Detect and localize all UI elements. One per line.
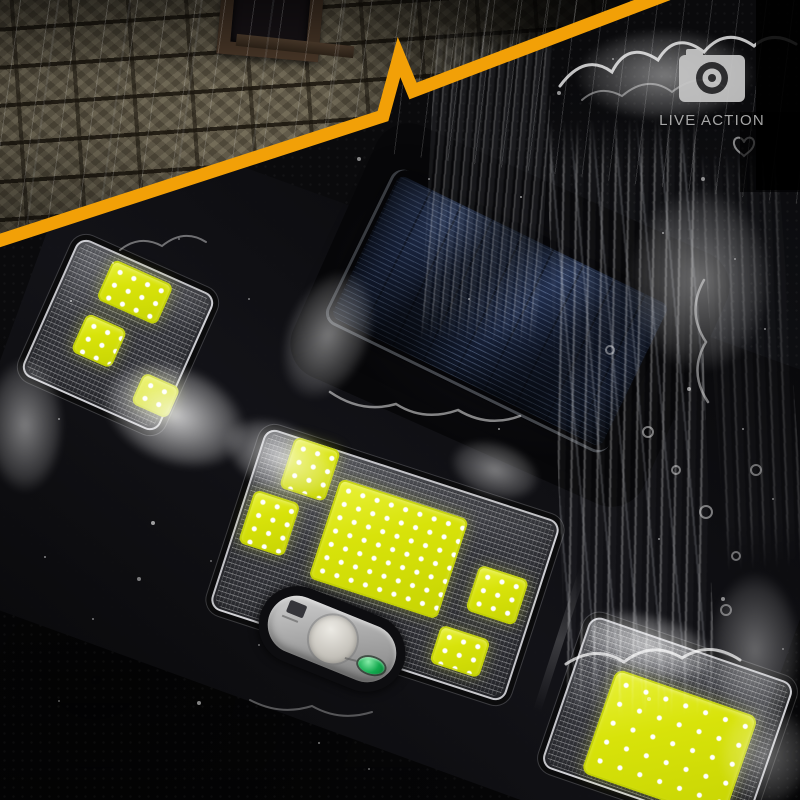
- power-button: [356, 654, 386, 677]
- micro-label-line: [345, 657, 357, 662]
- water-droplets: [0, 0, 2, 2]
- indicator-chip: [286, 600, 308, 619]
- product-photo-scene: LIVE ACTION: [0, 0, 800, 800]
- water-cascade: [420, 23, 554, 347]
- badge-label: LIVE ACTION: [650, 112, 774, 129]
- live-action-badge: LIVE ACTION: [650, 48, 774, 129]
- camera-icon: [679, 48, 745, 102]
